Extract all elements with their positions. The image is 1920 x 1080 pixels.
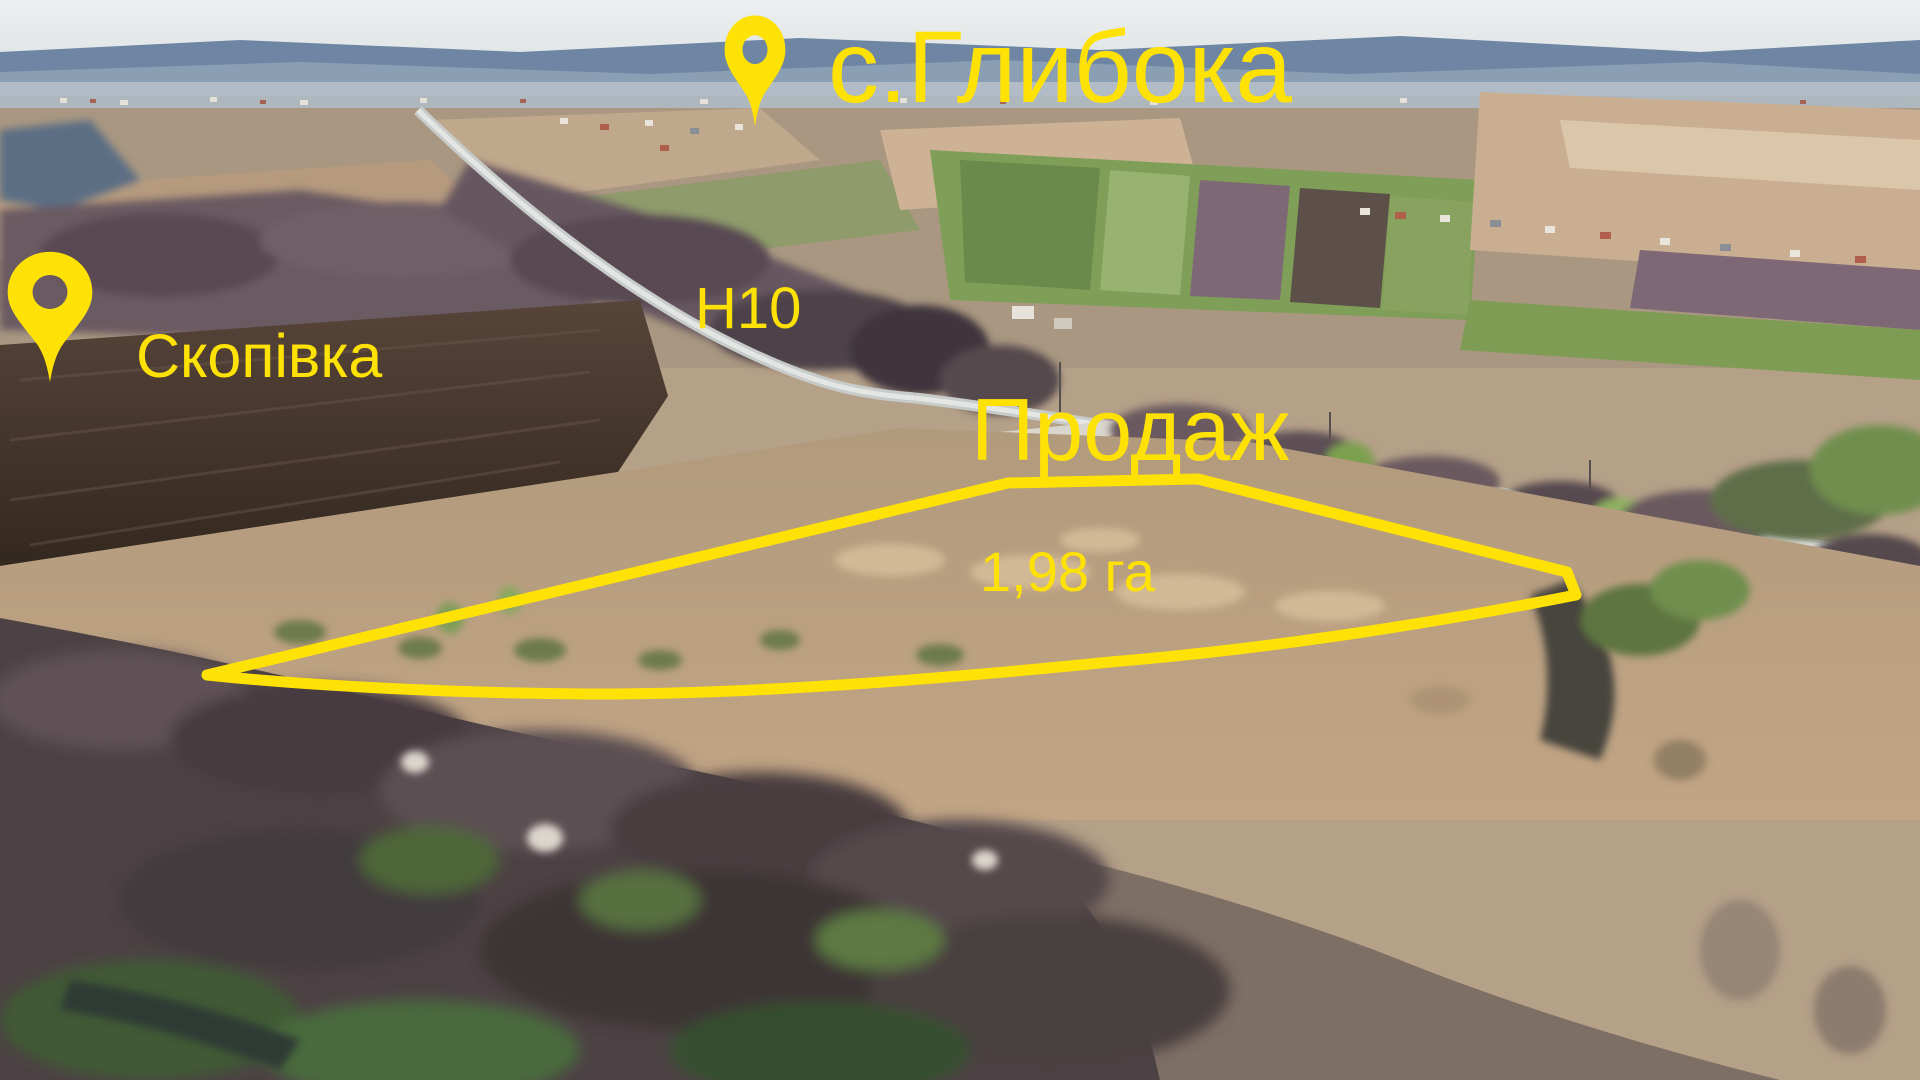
sale-label: Продаж [971,386,1289,474]
location-pin-icon [722,14,788,128]
village-label-skopivka: Скопівка [136,326,382,387]
village-label-hlyboka: с.Глибока [828,16,1292,118]
aerial-photo: с.Глибока Скопівка Н10 Продаж 1,98 га [0,0,1920,1080]
road-label-h10: Н10 [695,280,801,338]
location-pin-icon [4,250,96,384]
parcel-area-label: 1,98 га [980,544,1155,600]
landscape-photo [0,0,1920,1080]
